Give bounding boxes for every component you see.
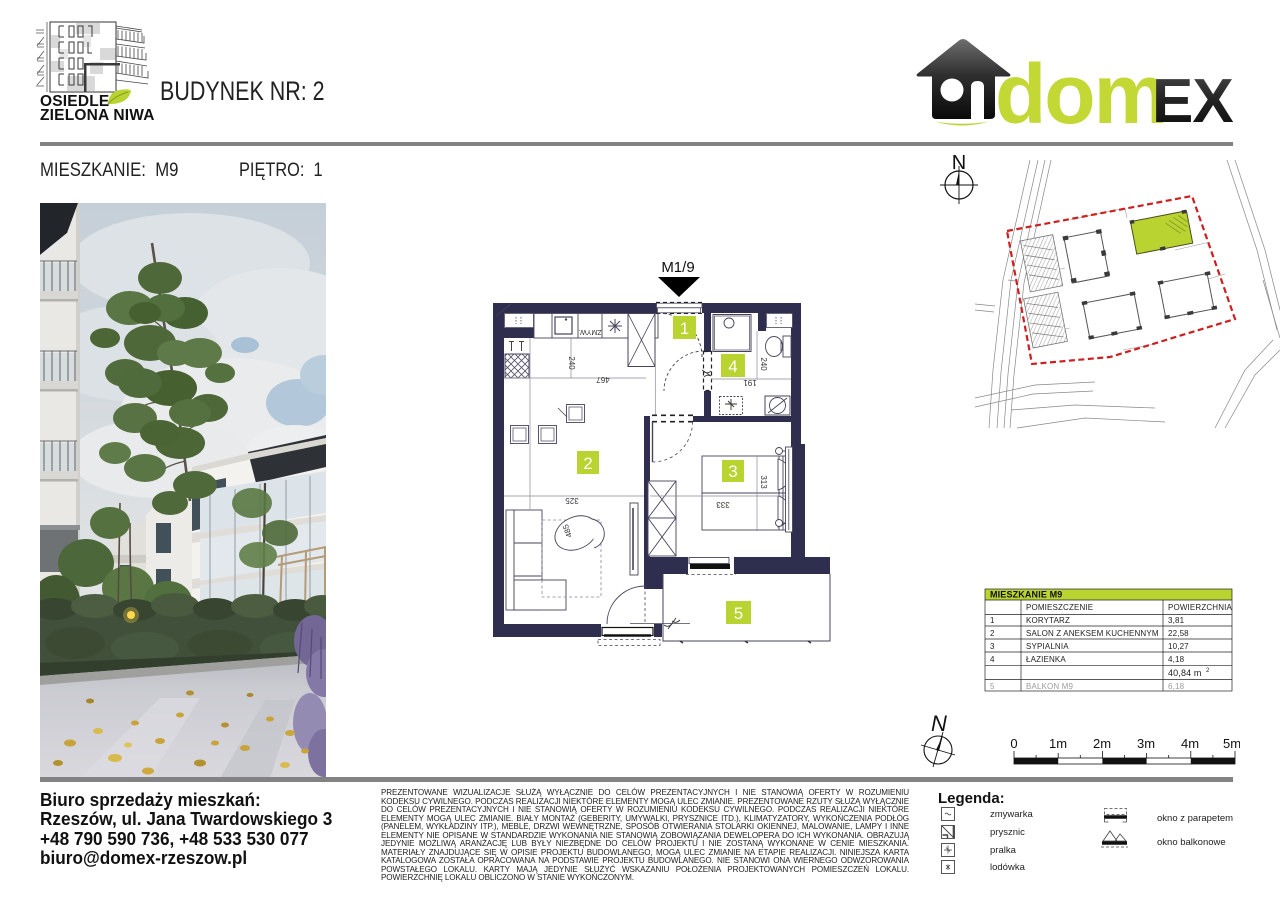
svg-text:10,27: 10,27 <box>1168 642 1189 651</box>
svg-text:okno balkonowe: okno balkonowe <box>1157 837 1226 848</box>
svg-text:4: 4 <box>990 655 995 664</box>
svg-text:dom: dom <box>995 47 1166 130</box>
svg-text:333: 333 <box>716 500 730 509</box>
svg-text:2: 2 <box>1206 668 1210 674</box>
svg-text:SYPIALNIA: SYPIALNIA <box>1026 642 1069 651</box>
svg-text:prysznic: prysznic <box>990 827 1025 838</box>
svg-text:467: 467 <box>596 375 610 384</box>
svg-text:2m: 2m <box>1093 736 1111 751</box>
svg-text:1: 1 <box>680 319 689 338</box>
svg-text:KORYTARZ: KORYTARZ <box>1026 616 1070 625</box>
svg-text:EX: EX <box>1152 67 1233 130</box>
svg-text:2: 2 <box>583 454 592 473</box>
svg-text:pralka: pralka <box>990 845 1017 856</box>
svg-text:40,84 m: 40,84 m <box>1168 668 1202 678</box>
svg-text:2: 2 <box>990 629 995 638</box>
svg-text:4m: 4m <box>1181 736 1199 751</box>
svg-text:5: 5 <box>734 604 743 623</box>
svg-text:313: 313 <box>759 475 768 489</box>
svg-text:ŁAZIENKA: ŁAZIENKA <box>1026 655 1066 664</box>
svg-text:3,81: 3,81 <box>1168 616 1185 625</box>
svg-text:BALKON M9: BALKON M9 <box>1026 682 1074 691</box>
svg-text:325: 325 <box>565 496 579 505</box>
svg-text:3: 3 <box>990 642 995 651</box>
svg-text:lodówka: lodówka <box>990 862 1026 873</box>
svg-text:5m: 5m <box>1223 736 1240 751</box>
svg-text:5: 5 <box>990 682 995 691</box>
svg-text:22,58: 22,58 <box>1168 629 1189 638</box>
svg-text:1: 1 <box>990 616 995 625</box>
svg-text:240: 240 <box>759 357 768 371</box>
svg-text:SALON Z ANEKSEM KUCHENNYM: SALON Z ANEKSEM KUCHENNYM <box>1026 629 1159 638</box>
svg-text:POMIESZCZENIE: POMIESZCZENIE <box>1026 603 1093 612</box>
svg-text:6,18: 6,18 <box>1168 682 1185 691</box>
svg-text:3: 3 <box>728 462 737 481</box>
svg-text:4: 4 <box>728 357 737 376</box>
svg-text:zmywarka: zmywarka <box>990 809 1033 820</box>
svg-text:191: 191 <box>743 378 757 387</box>
svg-text:ZMYW.: ZMYW. <box>578 328 601 335</box>
svg-text:0: 0 <box>1010 736 1017 751</box>
svg-text:MIESZKANIE M9: MIESZKANIE M9 <box>990 590 1062 600</box>
svg-text:240: 240 <box>567 356 576 370</box>
svg-text:POWIERZCHNIA: POWIERZCHNIA <box>1168 603 1233 612</box>
svg-text:1m: 1m <box>1049 736 1067 751</box>
svg-text:M1/9: M1/9 <box>661 259 694 276</box>
svg-text:3m: 3m <box>1137 736 1155 751</box>
svg-text:N: N <box>931 711 947 736</box>
svg-text:okno z parapetem: okno z parapetem <box>1157 813 1233 824</box>
svg-text:4,18: 4,18 <box>1168 655 1185 664</box>
